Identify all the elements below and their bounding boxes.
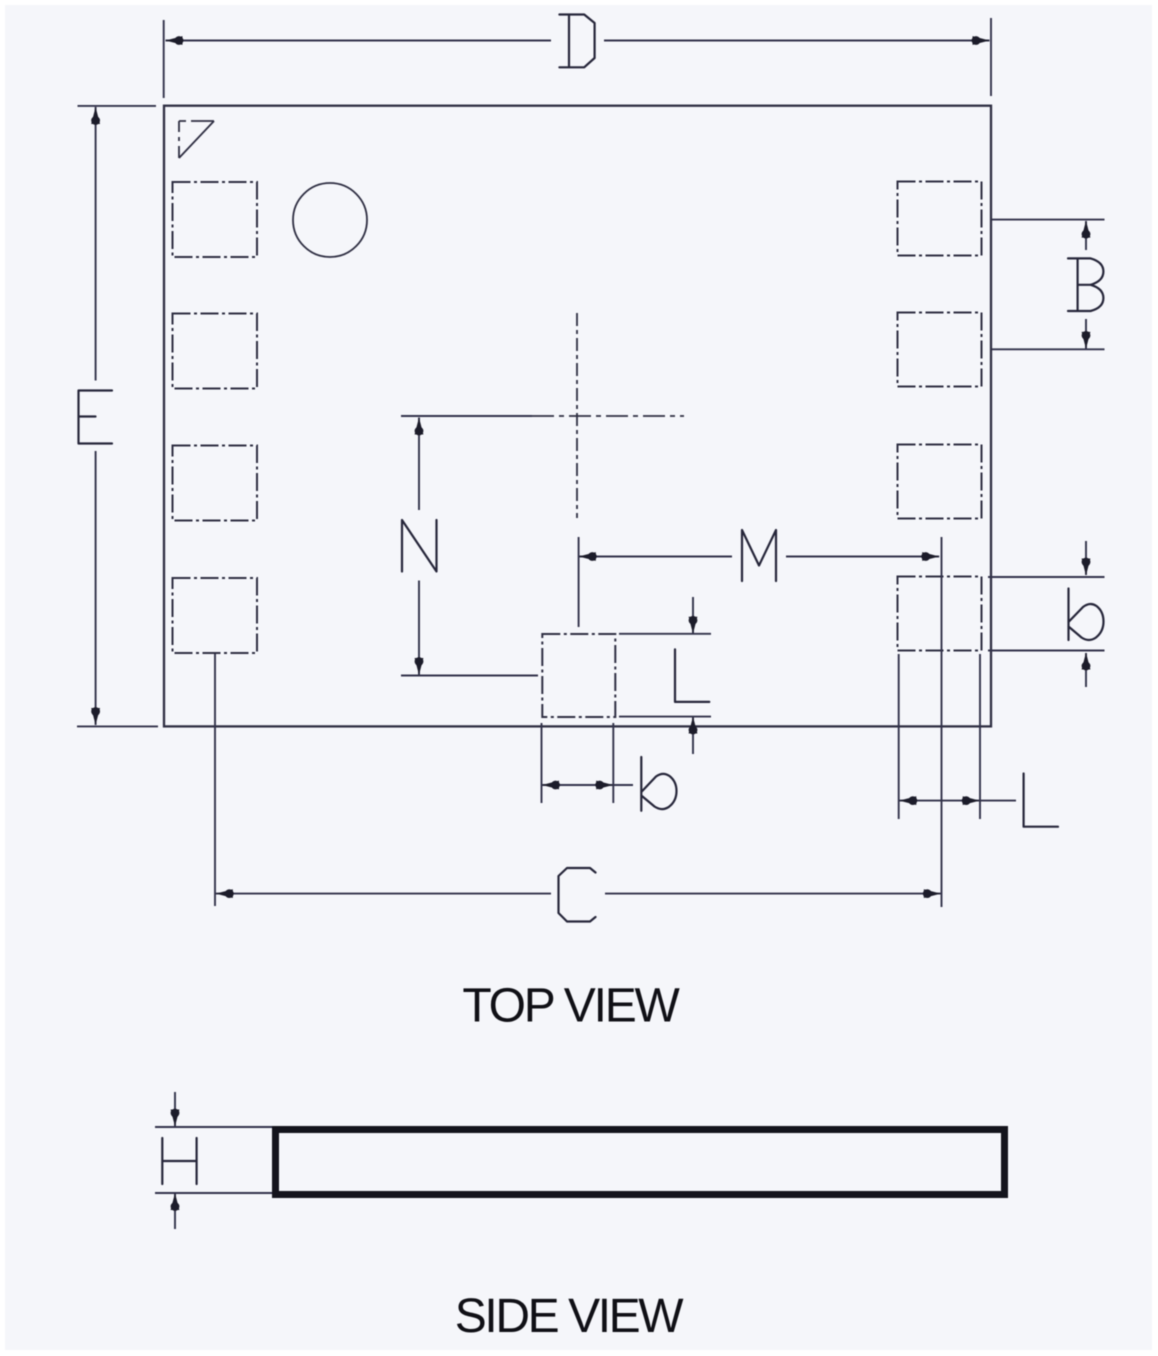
svg-text:SIDE VIEW: SIDE VIEW [455, 1290, 685, 1343]
svg-text:TOP VIEW: TOP VIEW [462, 980, 680, 1033]
